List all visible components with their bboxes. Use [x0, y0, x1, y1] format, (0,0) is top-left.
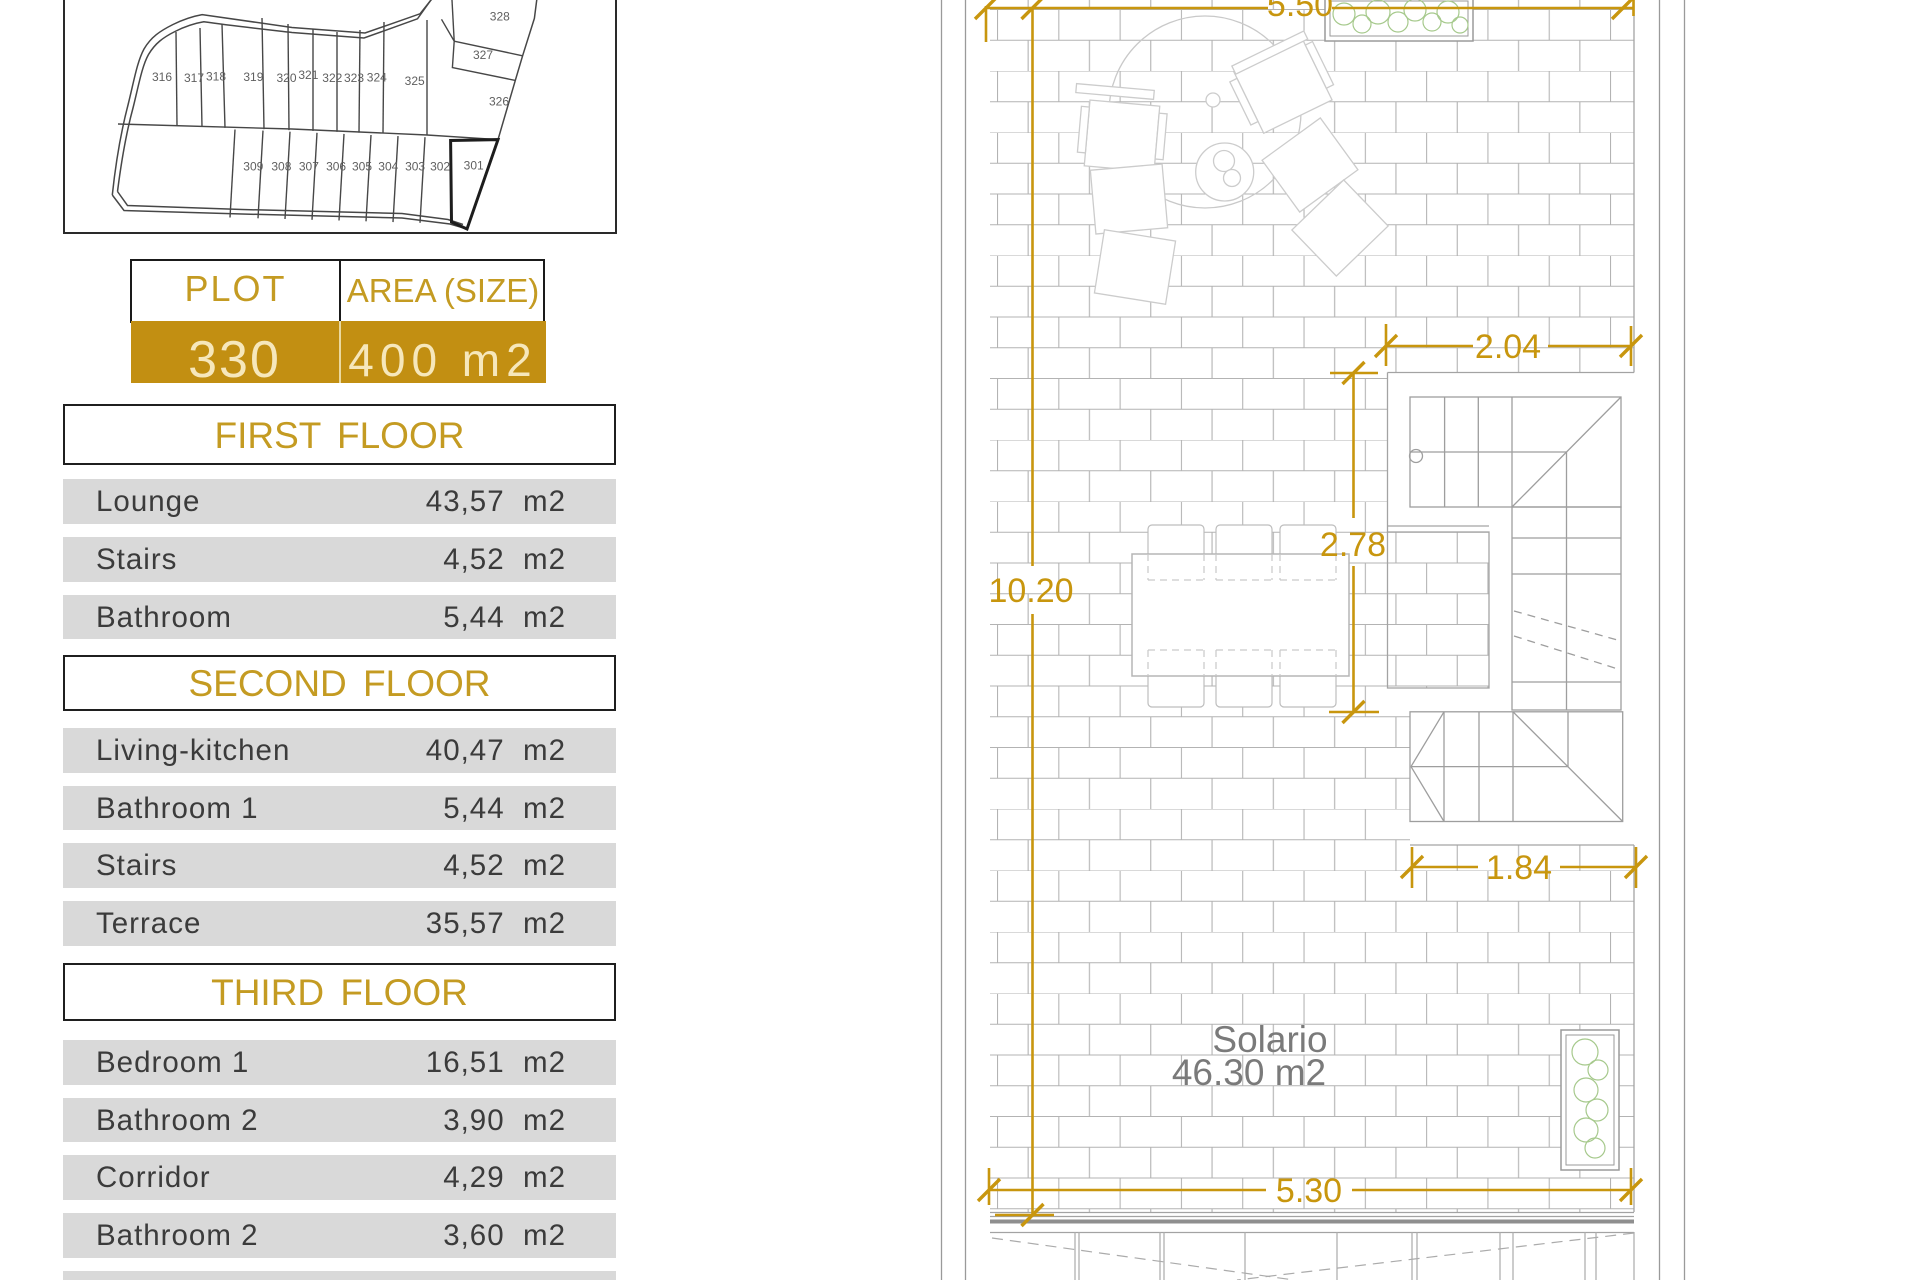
- svg-text:319: 319: [243, 70, 263, 84]
- svg-text:318: 318: [206, 70, 226, 84]
- svg-text:1.84: 1.84: [1486, 849, 1552, 887]
- svg-text:328: 328: [490, 9, 510, 23]
- svg-text:2.78: 2.78: [1320, 526, 1386, 564]
- svg-text:301: 301: [464, 159, 484, 173]
- svg-text:304: 304: [378, 159, 398, 173]
- svg-text:326: 326: [489, 95, 509, 109]
- svg-text:305: 305: [352, 159, 372, 173]
- svg-text:302: 302: [430, 159, 450, 173]
- svg-text:307: 307: [299, 159, 319, 173]
- svg-text:303: 303: [405, 159, 425, 173]
- svg-text:324: 324: [367, 70, 387, 84]
- svg-text:46.30 m2: 46.30 m2: [1172, 1052, 1326, 1093]
- svg-text:321: 321: [298, 68, 318, 82]
- svg-text:320: 320: [276, 71, 296, 85]
- svg-text:5.50: 5.50: [1267, 0, 1333, 24]
- svg-text:309: 309: [243, 159, 263, 173]
- svg-text:317: 317: [184, 71, 204, 85]
- svg-text:327: 327: [473, 48, 493, 62]
- svg-text:306: 306: [326, 159, 346, 173]
- svg-text:5.30: 5.30: [1276, 1172, 1342, 1210]
- svg-text:325: 325: [405, 74, 425, 88]
- svg-text:316: 316: [152, 70, 172, 84]
- svg-text:308: 308: [271, 159, 291, 173]
- svg-text:322: 322: [322, 71, 342, 85]
- svg-text:323: 323: [344, 71, 364, 85]
- svg-text:10.20: 10.20: [988, 572, 1073, 610]
- svg-text:2.04: 2.04: [1475, 328, 1541, 366]
